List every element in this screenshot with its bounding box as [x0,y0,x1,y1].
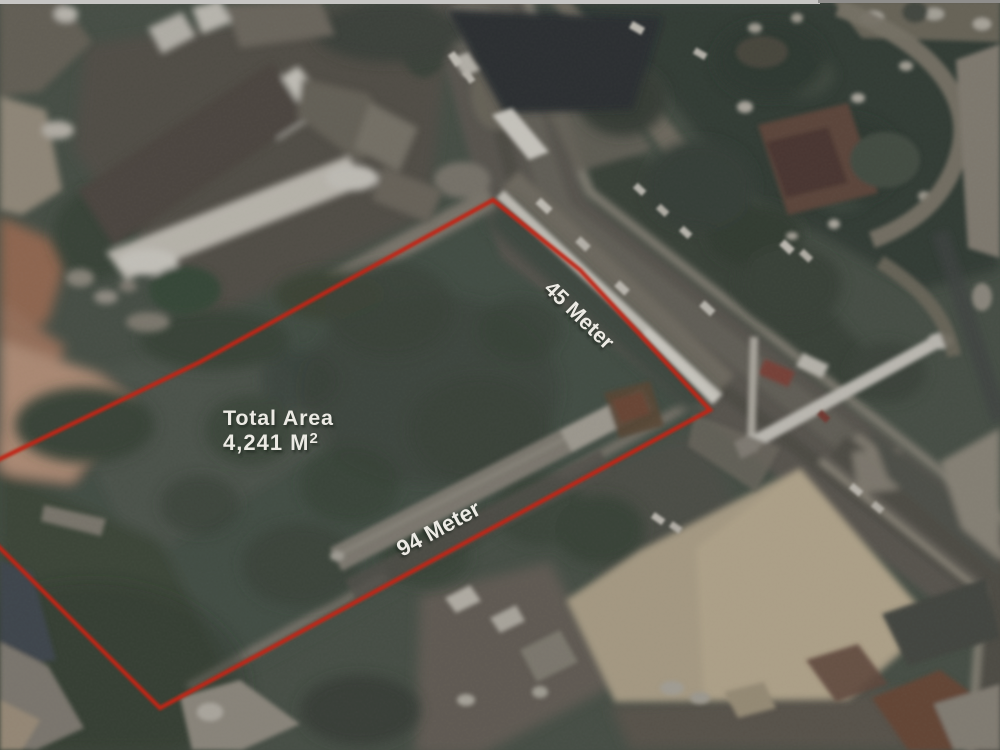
svg-text:4,241 M2: 4,241 M2 [223,430,319,455]
svg-text:Total Area: Total Area [223,406,334,430]
